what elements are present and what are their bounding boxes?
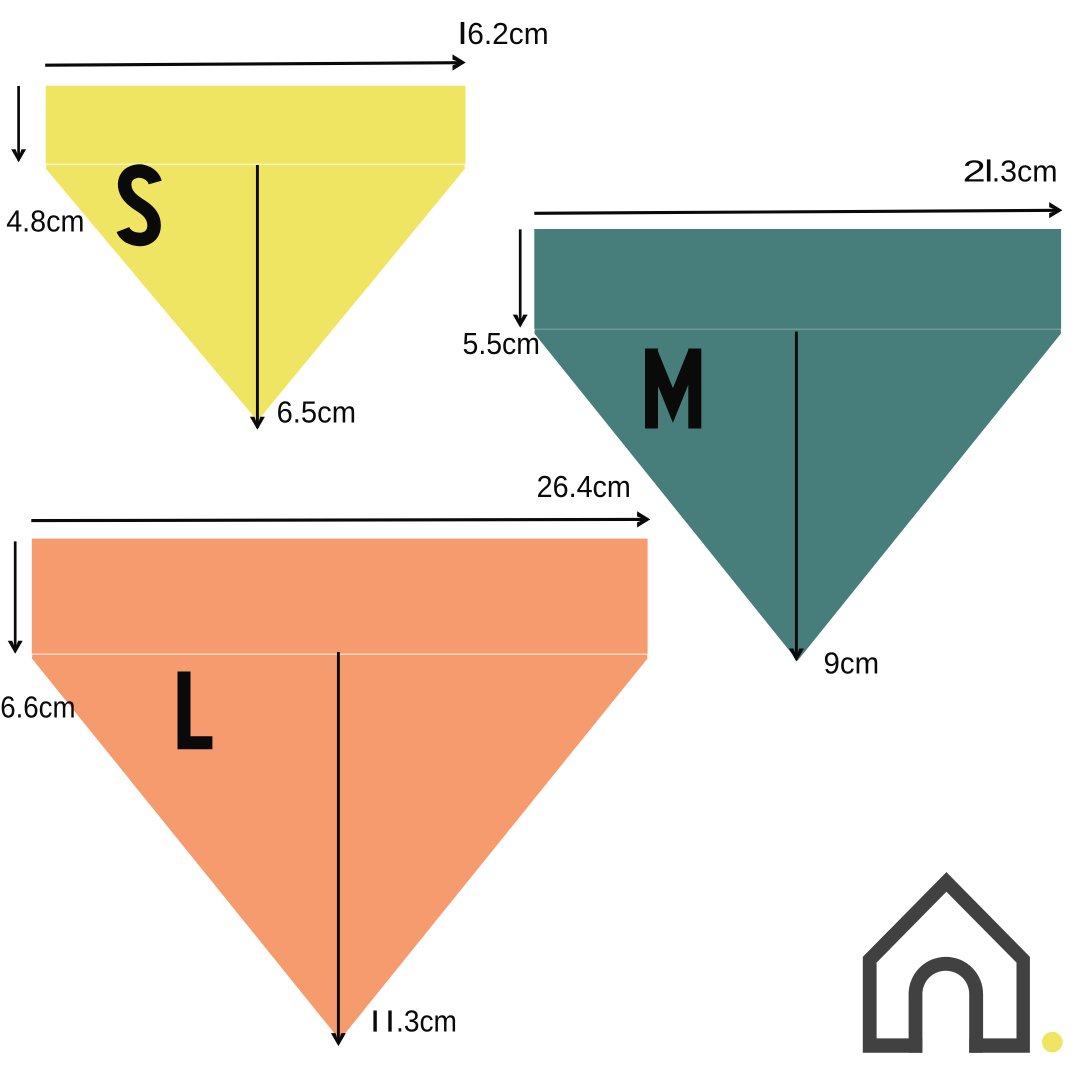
- svg-text:2: 2: [963, 154, 986, 189]
- svg-text:26.4cm: 26.4cm: [537, 469, 631, 504]
- svg-text:4.8cm: 4.8cm: [6, 203, 84, 238]
- svg-text:6.2cm: 6.2cm: [467, 16, 549, 51]
- svg-text:6.6cm: 6.6cm: [0, 689, 75, 724]
- svg-text:.3cm: .3cm: [992, 154, 1058, 189]
- svg-text:9cm: 9cm: [824, 645, 880, 680]
- svg-text:6.5cm: 6.5cm: [277, 395, 356, 430]
- svg-text:5.5cm: 5.5cm: [463, 326, 541, 361]
- svg-text:.3cm: .3cm: [396, 1004, 457, 1039]
